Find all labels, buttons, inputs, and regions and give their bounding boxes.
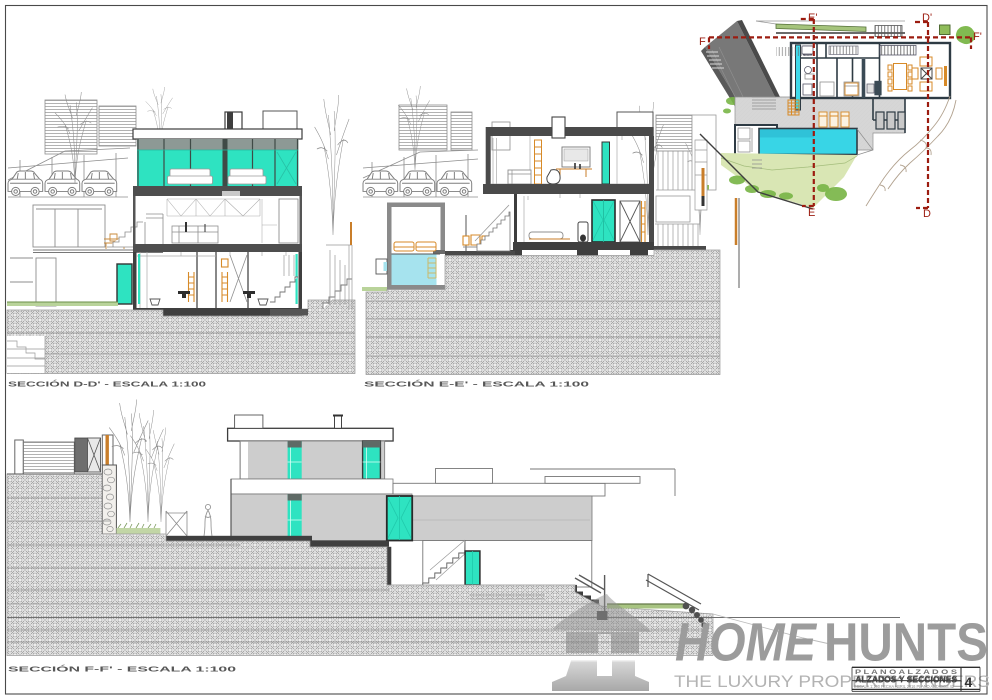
svg-text:D: D <box>923 208 931 220</box>
svg-text:D': D' <box>922 12 932 24</box>
svg-text:F': F' <box>973 31 982 43</box>
svg-text:SECCIÓN D-D' - ESCALA 1:100: SECCIÓN D-D' - ESCALA 1:100 <box>8 380 206 389</box>
svg-text:HUNTS: HUNTS <box>824 614 988 673</box>
svg-text:E: E <box>808 207 815 219</box>
svg-text:4: 4 <box>965 674 973 690</box>
svg-text:ESCALA 1:100 FECHA ABRIL 201: ESCALA 1:100 FECHA ABRIL 2016 PLANO ALZA… <box>854 684 954 689</box>
svg-text:E': E' <box>808 12 817 24</box>
svg-text:SECCIÓN E-E' - ESCALA 1:100: SECCIÓN E-E' - ESCALA 1:100 <box>364 380 589 389</box>
svg-text:HOME: HOME <box>675 614 818 673</box>
svg-text:ALZADOS Y SECCIONES: ALZADOS Y SECCIONES <box>856 675 959 684</box>
svg-text:F: F <box>699 36 706 48</box>
svg-text:SECCIÓN F-F' - ESCALA 1:100: SECCIÓN F-F' - ESCALA 1:100 <box>8 665 236 674</box>
